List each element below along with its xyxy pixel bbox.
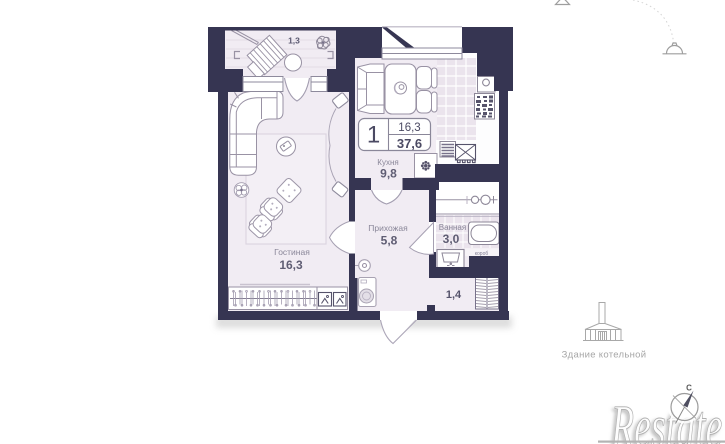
svg-text:9,8: 9,8	[380, 167, 397, 181]
svg-text:1: 1	[367, 122, 380, 149]
svg-text:37,6: 37,6	[397, 136, 422, 151]
svg-text:короб: короб	[475, 251, 489, 257]
svg-text:Здание котельной: Здание котельной	[562, 350, 647, 361]
svg-text:1,3: 1,3	[288, 36, 300, 46]
svg-text:Ванная: Ванная	[439, 223, 466, 232]
svg-text:3,0: 3,0	[443, 232, 460, 246]
svg-text:Restate: Restate	[610, 393, 722, 444]
svg-text:16,3: 16,3	[398, 122, 420, 134]
svg-text:1,4: 1,4	[446, 289, 462, 301]
svg-text:С: С	[686, 384, 692, 393]
svg-text:5,8: 5,8	[381, 234, 398, 248]
svg-text:Гостиная: Гостиная	[274, 247, 310, 257]
svg-text:16,3: 16,3	[279, 258, 303, 272]
svg-text:Прихожая: Прихожая	[368, 223, 408, 233]
